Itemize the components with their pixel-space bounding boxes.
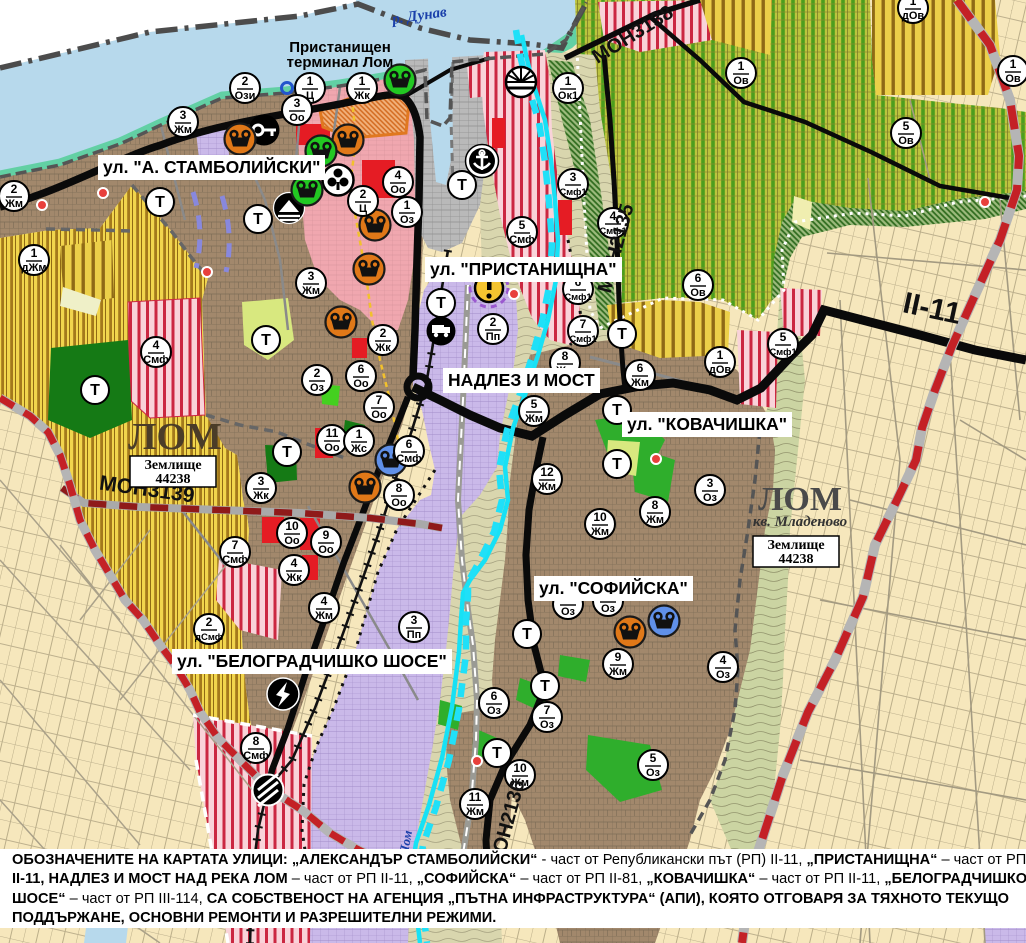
svg-text:7: 7 [376, 393, 383, 407]
svg-text:1: 1 [359, 74, 366, 88]
svg-text:Т: Т [612, 402, 622, 419]
svg-text:12: 12 [540, 465, 554, 479]
svg-text:Оз: Оз [703, 492, 718, 504]
svg-text:Жм: Жм [314, 610, 333, 622]
svg-text:Т: Т [282, 444, 292, 461]
svg-text:4: 4 [321, 594, 328, 608]
svg-text:44238: 44238 [156, 472, 191, 487]
svg-text:Ов: Ов [733, 75, 749, 87]
svg-text:11: 11 [326, 426, 339, 440]
svg-text:Жм: Жм [645, 514, 664, 526]
svg-text:дЖм: дЖм [21, 262, 46, 274]
svg-text:Ози: Ози [235, 90, 256, 102]
svg-text:ЛОМ: ЛОМ [128, 416, 222, 458]
svg-text:Ок1: Ок1 [558, 90, 578, 102]
svg-text:терминал Лом: терминал Лом [287, 54, 394, 71]
svg-text:Смф: Смф [143, 354, 169, 366]
svg-text:44238: 44238 [779, 552, 814, 567]
svg-text:Жк: Жк [285, 572, 302, 584]
svg-text:Землище: Землище [767, 538, 824, 553]
svg-text:Оо: Оо [353, 378, 369, 390]
svg-text:Оз: Оз [646, 767, 661, 779]
svg-text:2: 2 [11, 182, 18, 196]
svg-text:5: 5 [780, 330, 787, 344]
svg-text:1: 1 [910, 0, 917, 8]
svg-text:4: 4 [291, 556, 298, 570]
svg-text:5: 5 [531, 397, 538, 411]
svg-text:Т: Т [612, 456, 622, 473]
svg-text:10: 10 [593, 510, 607, 524]
svg-text:Оо: Оо [391, 497, 407, 509]
svg-text:8: 8 [396, 481, 403, 495]
svg-text:Оо: Оо [371, 409, 387, 421]
svg-text:7: 7 [232, 538, 239, 552]
svg-text:9: 9 [615, 650, 622, 664]
svg-text:Жс: Жс [350, 443, 367, 455]
svg-text:Т: Т [155, 194, 165, 211]
svg-text:Жм: Жм [630, 377, 649, 389]
svg-text:Ц: Ц [359, 203, 367, 215]
svg-text:Т: Т [253, 211, 263, 228]
svg-text:Ов: Ов [898, 135, 914, 147]
svg-text:10: 10 [285, 519, 299, 533]
svg-text:1: 1 [565, 74, 572, 88]
svg-text:6: 6 [406, 437, 413, 451]
svg-text:Оз: Оз [601, 603, 616, 615]
svg-text:Т: Т [617, 326, 627, 343]
svg-text:8: 8 [253, 734, 260, 748]
svg-text:Оз: Оз [487, 705, 502, 717]
svg-text:Оо: Оо [289, 112, 305, 124]
svg-text:6: 6 [637, 361, 644, 375]
svg-text:1: 1 [717, 348, 724, 362]
svg-text:кв. Младеново: кв. Младеново [753, 514, 847, 530]
svg-text:Смф1: Смф1 [769, 347, 797, 358]
svg-text:2: 2 [206, 615, 213, 629]
svg-text:3: 3 [294, 96, 301, 110]
svg-text:Оо: Оо [284, 535, 300, 547]
svg-text:Смф1: Смф1 [559, 187, 587, 198]
svg-text:Оз: Оз [561, 606, 576, 618]
svg-text:5: 5 [650, 751, 657, 765]
svg-text:3: 3 [258, 474, 265, 488]
svg-text:5: 5 [903, 119, 910, 133]
svg-text:5: 5 [519, 218, 526, 232]
svg-text:Оз: Оз [540, 719, 555, 731]
svg-text:7: 7 [580, 317, 587, 331]
svg-text:2: 2 [314, 366, 321, 380]
svg-text:Т: Т [436, 295, 446, 312]
svg-text:Пп: Пп [407, 629, 422, 641]
svg-text:дОв: дОв [902, 10, 925, 22]
svg-text:Оз: Оз [716, 669, 731, 681]
svg-text:3: 3 [570, 170, 577, 184]
svg-text:2: 2 [242, 74, 249, 88]
svg-text:Жм: Жм [524, 413, 543, 425]
svg-text:1: 1 [356, 427, 363, 441]
svg-text:Оо: Оо [390, 184, 406, 196]
svg-text:Оо: Оо [324, 442, 340, 454]
svg-text:Т: Т [540, 678, 550, 695]
svg-text:Смф: Смф [396, 453, 422, 465]
svg-text:Жм: Жм [465, 806, 484, 818]
svg-text:2: 2 [490, 315, 497, 329]
svg-text:ЛОМ: ЛОМ [758, 481, 842, 518]
svg-text:Жм: Жм [173, 124, 192, 136]
svg-text:Жм: Жм [590, 526, 609, 538]
svg-text:11: 11 [469, 790, 482, 804]
svg-text:8: 8 [652, 498, 659, 512]
svg-text:1: 1 [404, 198, 411, 212]
svg-text:3: 3 [707, 476, 714, 490]
svg-text:Т: Т [457, 177, 467, 194]
svg-text:Жк: Жк [374, 342, 391, 354]
svg-text:3: 3 [308, 269, 315, 283]
svg-text:Жм: Жм [537, 481, 556, 493]
svg-text:2: 2 [380, 326, 387, 340]
svg-text:Оз: Оз [400, 214, 415, 226]
svg-text:Оз: Оз [310, 382, 325, 394]
svg-text:Смф: Смф [509, 234, 535, 246]
svg-text:8: 8 [562, 349, 569, 363]
svg-text:2: 2 [360, 187, 367, 201]
svg-text:1: 1 [738, 59, 745, 73]
svg-text:Жк: Жк [252, 490, 269, 502]
svg-text:Землище: Землище [144, 458, 201, 473]
svg-text:4: 4 [720, 653, 727, 667]
svg-text:Жм: Жм [301, 285, 320, 297]
svg-text:Смф1: Смф1 [564, 292, 592, 303]
svg-text:Жм: Жм [608, 666, 627, 678]
svg-text:6: 6 [695, 271, 702, 285]
svg-text:7: 7 [544, 703, 551, 717]
svg-text:Т: Т [90, 382, 100, 399]
svg-text:6: 6 [358, 362, 365, 376]
svg-text:4: 4 [153, 338, 160, 352]
svg-text:4: 4 [395, 168, 402, 182]
svg-text:дОв: дОв [709, 364, 732, 376]
svg-text:Пп: Пп [486, 331, 501, 343]
svg-text:1: 1 [31, 246, 38, 260]
svg-text:Ов: Ов [690, 287, 706, 299]
svg-text:Т: Т [522, 626, 532, 643]
svg-text:Жк: Жк [353, 90, 370, 102]
svg-text:Смф1: Смф1 [569, 334, 597, 345]
svg-text:дСмф: дСмф [195, 632, 223, 643]
svg-text:1: 1 [307, 74, 314, 88]
svg-text:1: 1 [1010, 57, 1017, 71]
svg-text:Т: Т [261, 332, 271, 349]
svg-text:Ов: Ов [1005, 73, 1021, 85]
svg-text:9: 9 [323, 528, 330, 542]
svg-text:Оо: Оо [318, 544, 334, 556]
svg-text:10: 10 [513, 761, 527, 775]
svg-text:3: 3 [180, 108, 187, 122]
svg-text:Т: Т [492, 745, 502, 762]
svg-text:Жм: Жм [4, 198, 23, 210]
svg-text:3: 3 [411, 613, 418, 627]
svg-text:Смф: Смф [243, 750, 269, 762]
svg-text:6: 6 [491, 689, 498, 703]
svg-text:Смф: Смф [222, 554, 248, 566]
